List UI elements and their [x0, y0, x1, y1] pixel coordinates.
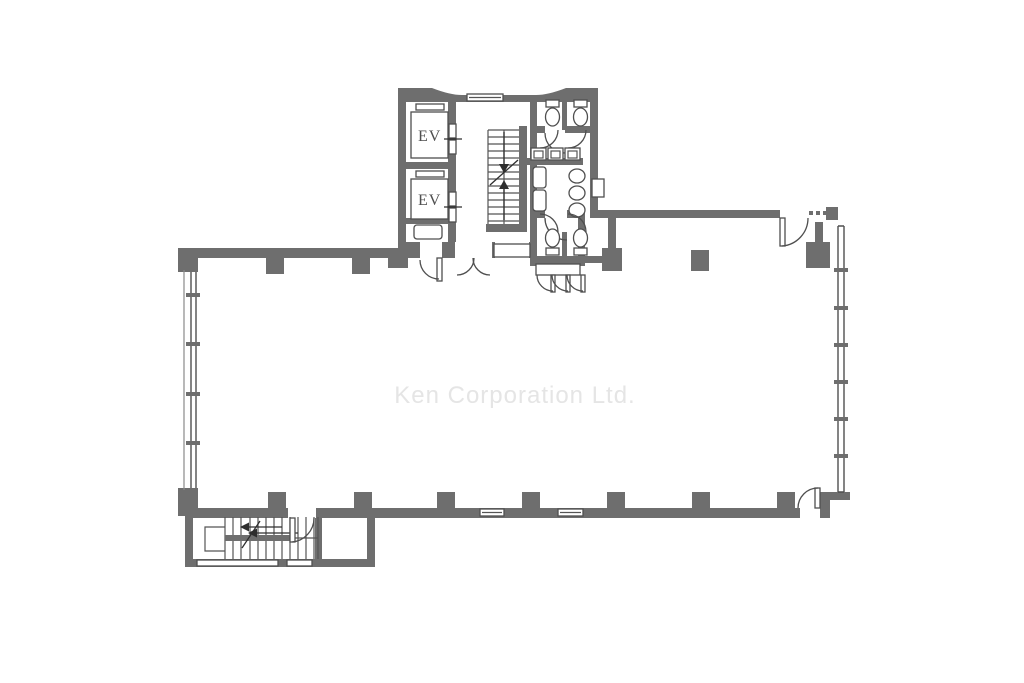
core-right-wall [590, 88, 598, 218]
corner-block [826, 207, 838, 220]
office-top-wall [178, 248, 408, 258]
top-stall-divider [562, 102, 567, 130]
central-staircase [488, 130, 519, 224]
wing-top-wall [598, 210, 780, 218]
column [692, 492, 710, 508]
door-leaf [290, 518, 295, 542]
restroom-window [592, 179, 604, 197]
glass-lines [191, 272, 196, 488]
toilet-tank [574, 100, 587, 107]
door-leaf [437, 258, 442, 281]
restroom-mid-room [533, 167, 585, 240]
double-door-arc [473, 258, 490, 275]
counter-fixture [533, 190, 546, 211]
stair-bottom-wall [486, 224, 527, 232]
counterweight [416, 104, 444, 110]
dash-mark [823, 211, 826, 215]
office-bottom-wall [185, 508, 288, 518]
door-indicator [449, 140, 456, 154]
up-arrow-head [499, 180, 509, 189]
mullion-tick [186, 392, 200, 396]
free-column [691, 250, 709, 271]
entrance-doors [420, 244, 530, 281]
column [607, 492, 625, 508]
step-wall [815, 222, 823, 242]
bottom-stall-divider [562, 232, 567, 258]
window-wall-left [184, 270, 200, 490]
floor-plan-page: EV EV [0, 0, 1024, 683]
urinal-icon [569, 169, 585, 183]
wing-partition [608, 218, 616, 248]
mullion-tick [834, 306, 848, 310]
dash-mark [816, 211, 820, 215]
counterweight [416, 171, 444, 177]
window-wall-right [834, 226, 848, 492]
door-indicator [449, 124, 456, 138]
mullion-tick [834, 417, 848, 421]
floor-plan-canvas: EV EV [0, 0, 1024, 683]
threshold-step [536, 264, 580, 275]
door-leaf [581, 275, 585, 292]
watermark-text: Ken Corporation Ltd. [394, 382, 635, 409]
mullion-tick [186, 342, 200, 346]
restroom-entry [536, 264, 585, 292]
stub-wall [582, 256, 606, 263]
mullion-tick [834, 454, 848, 458]
door-leaf [780, 218, 785, 246]
wing-door-arc [782, 218, 808, 246]
column [777, 492, 795, 508]
wing-walls [582, 207, 838, 271]
step-block [806, 242, 830, 268]
corner-elbow [820, 492, 850, 500]
column [352, 258, 370, 274]
mullion-tick [834, 343, 848, 347]
mullion-tick [186, 441, 200, 445]
stair-side-wall [519, 126, 527, 232]
column [266, 258, 284, 274]
mullion-tick [834, 380, 848, 384]
column [354, 492, 372, 508]
toilet-tank [574, 248, 587, 255]
service-closet [414, 225, 442, 239]
counter-fixture [533, 167, 546, 188]
elevator-1-label: EV [418, 128, 441, 145]
mullion-tick [186, 293, 200, 297]
stair-window [197, 560, 278, 566]
door-leaf [815, 488, 820, 508]
restroom-sinks [531, 148, 580, 160]
double-door-arc [457, 258, 474, 275]
corner-column [178, 248, 198, 272]
dash-mark [809, 211, 813, 215]
stair-window [287, 560, 312, 566]
core-left-wall [398, 88, 406, 266]
door-indicator [449, 192, 456, 206]
elevator-2-label: EV [418, 192, 441, 209]
mullion-tick [834, 268, 848, 272]
wall-junction [388, 248, 408, 268]
core-bottom-wall [442, 242, 455, 258]
toilet-tank [546, 248, 559, 255]
door-indicator [449, 208, 456, 222]
elevator-divider-wall [398, 162, 456, 169]
stair-landing [205, 527, 225, 551]
stair-right-wall [367, 508, 375, 567]
toilet-icon [546, 108, 560, 126]
stair-rail [225, 535, 290, 541]
closet-box [414, 225, 442, 239]
column [522, 492, 540, 508]
stair-left-wall [185, 508, 193, 567]
column [437, 492, 455, 508]
urinal-icon [569, 186, 585, 200]
stall-zone-wall [530, 126, 545, 133]
door-arc [420, 260, 439, 279]
toilet-icon [574, 108, 588, 126]
column [268, 492, 286, 508]
glass-lines [838, 226, 844, 492]
glass-sidelite [494, 244, 530, 257]
toilet-tank [546, 100, 559, 107]
